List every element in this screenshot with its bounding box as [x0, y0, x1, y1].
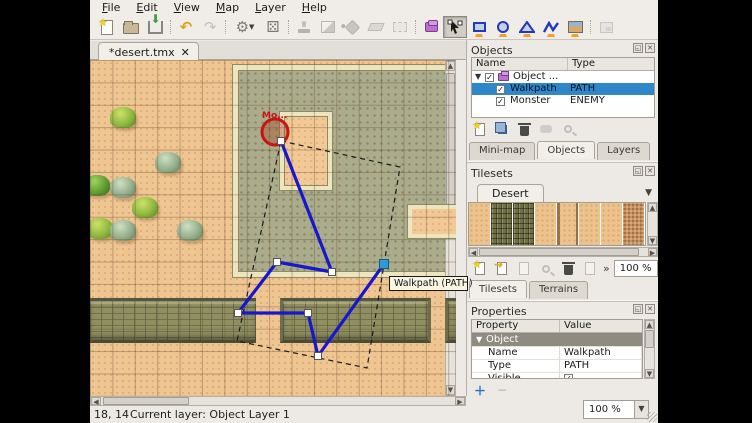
objects-panel-title: Objects: [471, 44, 513, 57]
toolbar-separator: [412, 18, 419, 36]
undo-icon[interactable]: ↶: [174, 16, 198, 38]
selected-vertex-handle[interactable]: [380, 260, 389, 269]
close-tab-icon[interactable]: ✕: [181, 46, 190, 59]
vertex-handle[interactable]: [329, 269, 336, 276]
map-zoom-combo[interactable]: 100 % ▼: [583, 400, 649, 419]
properties-panel-title: Properties: [471, 305, 527, 318]
tileset-tile[interactable]: [601, 203, 623, 246]
remove-tileset-icon[interactable]: [559, 261, 577, 277]
insert-ellipse-icon[interactable]: [491, 16, 515, 38]
walkpath-object[interactable]: [238, 141, 384, 356]
object-tooltip: Walkpath (PATH): [389, 276, 468, 291]
dock-tab-bar-mid: Tilesets Terrains: [469, 281, 590, 299]
property-row-visible[interactable]: Visible ✓: [472, 372, 642, 379]
scrollbar-thumb[interactable]: [103, 397, 189, 405]
dock-splitter[interactable]: [467, 161, 658, 163]
desktop-background: File Edit View Map Layer Help ★ ↶ ↷ ⚙▼ ⚄: [0, 0, 752, 423]
remove-object-icon[interactable]: [515, 121, 533, 137]
vertex-handle[interactable]: [315, 353, 322, 360]
document-tab-label: *desert.tmx: [109, 46, 175, 59]
dock-area: Objects ◱ ✕ Name Type ▼ ✓ Object ... ✓ W…: [466, 40, 658, 396]
column-value[interactable]: Value: [560, 320, 642, 332]
properties-toolbar: ＋ −: [471, 382, 511, 398]
vertex-handle[interactable]: [274, 259, 281, 266]
expander-icon[interactable]: ▼: [475, 71, 485, 83]
tileset-tile[interactable]: [491, 203, 513, 246]
object-properties-icon[interactable]: [559, 121, 577, 137]
close-panel-icon[interactable]: ✕: [645, 304, 655, 314]
scrollbar-thumb[interactable]: [479, 248, 639, 256]
object-layer-overlay: Mo...: [90, 60, 456, 396]
random-dice-icon[interactable]: ⚄: [261, 16, 285, 38]
layer-name: Object ...: [513, 71, 558, 83]
tileset-zoom-value: 100 %: [615, 263, 657, 274]
main-toolbar: ★ ↶ ↷ ⚙▼ ⚄: [90, 15, 658, 40]
scroll-right-icon[interactable]: ▶: [455, 397, 465, 405]
vertex-handle[interactable]: [278, 138, 285, 145]
open-file-icon[interactable]: [119, 16, 143, 38]
tileset-tile[interactable]: [579, 203, 601, 246]
menu-map[interactable]: Map: [208, 0, 247, 15]
tileset-tile[interactable]: [469, 203, 491, 246]
select-objects-icon[interactable]: [443, 16, 467, 38]
insert-polygon-icon[interactable]: [515, 16, 539, 38]
tileset-tab-desert[interactable]: Desert: [477, 184, 544, 202]
combo-dropdown-icon[interactable]: ▼: [634, 401, 648, 418]
scroll-right-icon[interactable]: ▶: [648, 248, 657, 256]
tile-coordinates: 18, 14: [94, 408, 129, 421]
tab-desert-tmx[interactable]: *desert.tmx ✕: [98, 42, 199, 60]
add-property-icon[interactable]: ＋: [471, 382, 489, 398]
export-tileset-icon[interactable]: [515, 261, 533, 277]
properties-table[interactable]: Property Value ▼ Object Name Walkpath Ty…: [471, 319, 643, 379]
toolbar-separator: [587, 18, 594, 36]
new-file-icon[interactable]: ★: [95, 16, 119, 38]
stamp-brush-icon[interactable]: [292, 16, 316, 38]
scrollbar-thumb[interactable]: [645, 330, 654, 348]
canvas-horizontal-scrollbar[interactable]: ◀ ▶: [90, 396, 466, 406]
objects-toolbar: ★: [471, 121, 577, 137]
toolbar-separator: [222, 18, 229, 36]
object-name: Walkpath: [510, 83, 570, 95]
object-visible-checkbox[interactable]: ✓: [496, 97, 505, 106]
property-key: Name: [472, 347, 560, 359]
property-row-name[interactable]: Name Walkpath: [472, 346, 642, 359]
tileset-tile[interactable]: [623, 203, 645, 246]
move-object-icon[interactable]: [537, 121, 555, 137]
scroll-left-icon[interactable]: ◀: [469, 248, 478, 256]
close-panel-icon[interactable]: ✕: [645, 43, 655, 53]
scroll-up-icon[interactable]: ▲: [648, 203, 657, 212]
duplicate-object-icon[interactable]: [493, 121, 511, 137]
expander-icon[interactable]: ▼: [476, 335, 486, 344]
group-label: Object: [486, 334, 519, 345]
object-name: Monster: [510, 95, 570, 107]
insert-rectangle-icon[interactable]: [467, 16, 491, 38]
toolbar-separator: [285, 18, 292, 36]
float-panel-icon[interactable]: ◱: [633, 304, 643, 314]
document-tab-bar: *desert.tmx ✕: [90, 41, 466, 60]
new-tileset-icon[interactable]: ★: [471, 261, 489, 277]
properties-vertical-scrollbar[interactable]: ▲ ▼: [644, 319, 655, 379]
objects-table[interactable]: Name Type ▼ ✓ Object ... ✓ Walkpath PATH…: [471, 57, 655, 118]
current-layer-label: Current layer: Object Layer 1: [130, 408, 290, 421]
object-type: PATH: [570, 83, 595, 95]
column-property[interactable]: Property: [472, 320, 560, 332]
close-panel-icon[interactable]: ✕: [645, 166, 655, 176]
tileset-tile[interactable]: [557, 203, 579, 246]
scroll-down-icon[interactable]: ▼: [645, 369, 654, 378]
map-canvas[interactable]: Mo...: [90, 60, 456, 396]
property-key: Visible: [472, 373, 560, 379]
scroll-up-icon[interactable]: ▲: [645, 320, 654, 329]
property-key: Type: [472, 360, 560, 372]
remove-property-icon[interactable]: −: [493, 382, 511, 398]
tileset-tile[interactable]: [513, 203, 535, 246]
object-layer-icon[interactable]: [419, 16, 443, 38]
column-name[interactable]: Name: [472, 58, 568, 70]
menu-help[interactable]: Help: [294, 0, 335, 15]
layer-visible-checkbox[interactable]: ✓: [485, 73, 494, 82]
eraser-icon[interactable]: [364, 16, 388, 38]
vertex-handle[interactable]: [235, 310, 242, 317]
property-value[interactable]: Walkpath: [560, 347, 642, 359]
tilesets-panel-title: Tilesets: [471, 167, 513, 180]
property-row-type[interactable]: Type PATH: [472, 359, 642, 372]
object-row-walkpath[interactable]: ✓ Walkpath PATH: [472, 83, 654, 95]
edit-tileset-icon[interactable]: [581, 261, 599, 277]
toolbar-separator: [167, 18, 174, 36]
terrain-brush-icon[interactable]: [316, 16, 340, 38]
menu-bar: File Edit View Map Layer Help: [90, 0, 658, 15]
rect-select-icon[interactable]: [388, 16, 412, 38]
commands-icon[interactable]: ⚙▼: [229, 16, 261, 38]
tab-objects[interactable]: Objects: [537, 141, 595, 159]
insert-tile-icon[interactable]: [563, 16, 587, 38]
tab-terrains[interactable]: Terrains: [529, 281, 588, 299]
toolbar-overflow-icon[interactable]: »: [603, 262, 610, 275]
insert-polyline-icon[interactable]: [539, 16, 563, 38]
dock-tab-bar-top: Mini-map Objects Layers: [469, 142, 652, 160]
bucket-fill-icon[interactable]: [340, 16, 364, 38]
new-object-icon[interactable]: ★: [471, 121, 489, 137]
tileset-properties-icon[interactable]: [537, 261, 555, 277]
column-type[interactable]: Type: [568, 58, 654, 70]
tileset-tile[interactable]: [535, 203, 557, 246]
dock-splitter[interactable]: [467, 300, 658, 302]
import-tileset-icon[interactable]: ➜: [493, 261, 511, 277]
status-bar: 18, 14 Current layer: Object Layer 1 100…: [90, 406, 658, 423]
layer-row[interactable]: ▼ ✓ Object ...: [472, 71, 654, 83]
vertex-handle[interactable]: [305, 310, 312, 317]
tiled-window: File Edit View Map Layer Help ★ ↶ ↷ ⚙▼ ⚄: [90, 0, 658, 423]
object-visible-checkbox[interactable]: ✓: [496, 85, 505, 94]
tab-layers[interactable]: Layers: [597, 142, 650, 160]
scroll-left-icon[interactable]: ◀: [91, 397, 101, 405]
properties-table-header: Property Value: [472, 320, 642, 333]
object-type: ENEMY: [570, 95, 605, 107]
combo-dropdown-icon[interactable]: ▼: [657, 261, 658, 276]
tileset-zoom-combo[interactable]: 100 % ▼: [614, 260, 658, 277]
objects-table-header: Name Type: [472, 58, 654, 71]
save-file-icon[interactable]: [143, 16, 167, 38]
redo-icon[interactable]: ↷: [198, 16, 222, 38]
object-row-monster[interactable]: ✓ Monster ENEMY: [472, 95, 654, 107]
monster-object-label: Mo...: [262, 111, 287, 121]
tileset-vertical-scrollbar[interactable]: ▲ ▼: [647, 202, 658, 246]
float-panel-icon[interactable]: ◱: [633, 166, 643, 176]
menu-layer[interactable]: Layer: [247, 0, 294, 15]
tileset-horizontal-scrollbar[interactable]: ◀ ▶: [468, 247, 658, 257]
tileset-view[interactable]: [468, 202, 646, 246]
float-panel-icon[interactable]: ◱: [633, 43, 643, 53]
tilesets-toolbar: ★ ➜ » 100 % ▼: [471, 260, 658, 277]
tileset-dropdown-icon[interactable]: ▼: [645, 188, 652, 198]
scroll-down-icon[interactable]: ▼: [648, 236, 657, 245]
property-checkbox[interactable]: ✓: [560, 373, 642, 379]
object-layer-icon: [498, 73, 509, 81]
menu-file[interactable]: File: [94, 0, 128, 15]
property-value[interactable]: PATH: [560, 360, 642, 372]
tab-tilesets[interactable]: Tilesets: [469, 280, 527, 298]
selection-bounds: [237, 141, 400, 368]
menu-view[interactable]: View: [166, 0, 208, 15]
highlight-layer-icon[interactable]: [594, 16, 618, 38]
property-group-object[interactable]: ▼ Object: [472, 333, 642, 346]
map-zoom-value: 100 %: [584, 404, 634, 415]
resize-grip[interactable]: [647, 412, 657, 422]
tab-minimap[interactable]: Mini-map: [469, 142, 535, 160]
